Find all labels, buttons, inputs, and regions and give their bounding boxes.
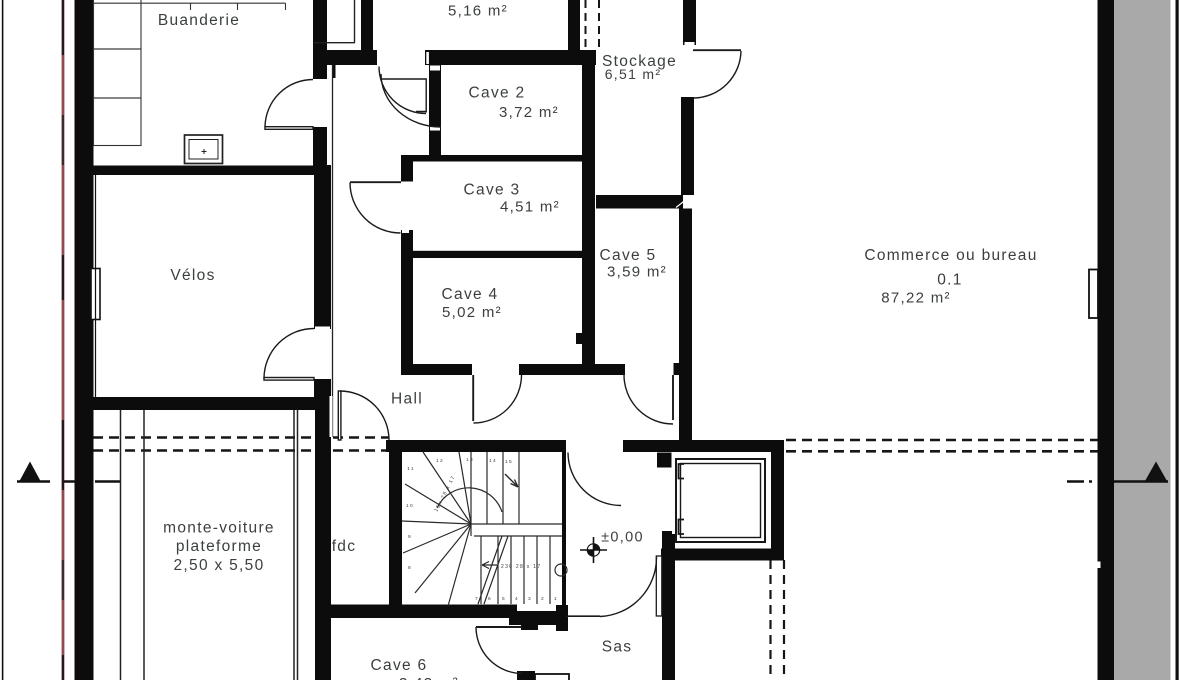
svg-text:3,72 m²: 3,72 m² [499,104,559,121]
svg-text:12: 12 [436,458,444,464]
svg-text:Cave 6: Cave 6 [371,657,428,674]
svg-text:236 28 x 17: 236 28 x 17 [501,564,541,570]
svg-text:Sas: Sas [602,639,633,656]
svg-text:8: 8 [408,565,412,571]
svg-text:9: 9 [408,534,412,540]
svg-text:Cave 4: Cave 4 [442,286,499,303]
svg-text:Buanderie: Buanderie [158,12,240,29]
svg-text:2: 2 [541,596,545,602]
svg-text:4,51 m²: 4,51 m² [500,199,560,216]
svg-text:±0,00: ±0,00 [601,530,644,546]
svg-text:87,22 m²: 87,22 m² [881,290,951,307]
svg-text:6,51 m²: 6,51 m² [605,66,662,82]
svg-text:13: 13 [466,457,474,463]
svg-text:5,02 m²: 5,02 m² [442,304,502,321]
svg-text:7: 7 [475,596,479,602]
svg-text:Cave 5: Cave 5 [600,247,657,264]
svg-text:plateforme: plateforme [176,538,262,555]
svg-text:1: 1 [554,596,558,602]
svg-text:monte-voiture: monte-voiture [163,520,275,537]
svg-text:0.1: 0.1 [937,272,962,289]
svg-text:10: 10 [406,503,414,509]
svg-text:2,50 x 5,50: 2,50 x 5,50 [174,557,265,574]
svg-text:Cave 2: Cave 2 [469,85,526,102]
svg-text:5: 5 [502,596,506,602]
svg-text:3,43 m²: 3,43 m² [399,675,459,680]
svg-text:6: 6 [488,596,492,602]
svg-text:11: 11 [407,466,415,472]
svg-text:Vélos: Vélos [170,267,215,284]
svg-text:5,16 m²: 5,16 m² [448,3,508,20]
svg-text:Commerce ou bureau: Commerce ou bureau [864,247,1037,264]
svg-text:3: 3 [528,596,532,602]
svg-text:15: 15 [505,459,513,465]
svg-text:Hall: Hall [391,391,423,408]
svg-text:Cave 3: Cave 3 [464,182,521,199]
svg-text:3,59 m²: 3,59 m² [607,264,667,281]
svg-text:fdc: fdc [332,538,357,555]
svg-text:4: 4 [515,596,519,602]
svg-text:14: 14 [489,458,497,464]
